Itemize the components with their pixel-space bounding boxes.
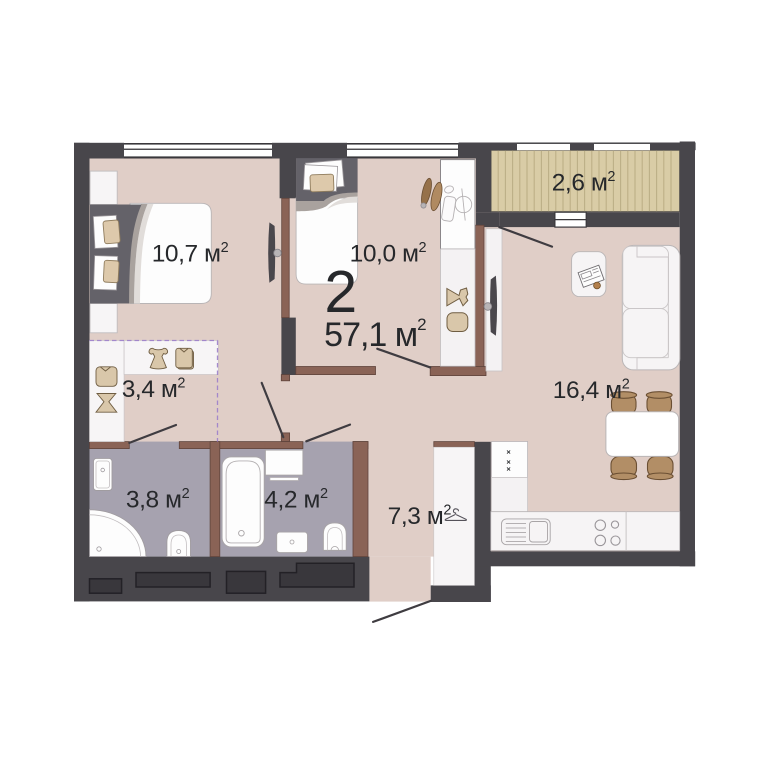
- svg-text:57,1 м2: 57,1 м2: [324, 315, 426, 354]
- svg-text:3,8 м2: 3,8 м2: [126, 486, 190, 514]
- svg-text:4,2 м2: 4,2 м2: [264, 486, 328, 513]
- svg-text:7,3 м2: 7,3 м2: [388, 503, 452, 531]
- svg-text:2,6 м2: 2,6 м2: [552, 169, 616, 197]
- svg-text:×: ×: [506, 447, 511, 456]
- svg-text:3,4 м2: 3,4 м2: [122, 376, 186, 404]
- svg-text:×: ×: [506, 465, 511, 474]
- svg-text:16,4 м2: 16,4 м2: [553, 376, 630, 404]
- svg-text:10,7 м2: 10,7 м2: [152, 240, 229, 268]
- svg-text:10,0 м2: 10,0 м2: [350, 240, 427, 268]
